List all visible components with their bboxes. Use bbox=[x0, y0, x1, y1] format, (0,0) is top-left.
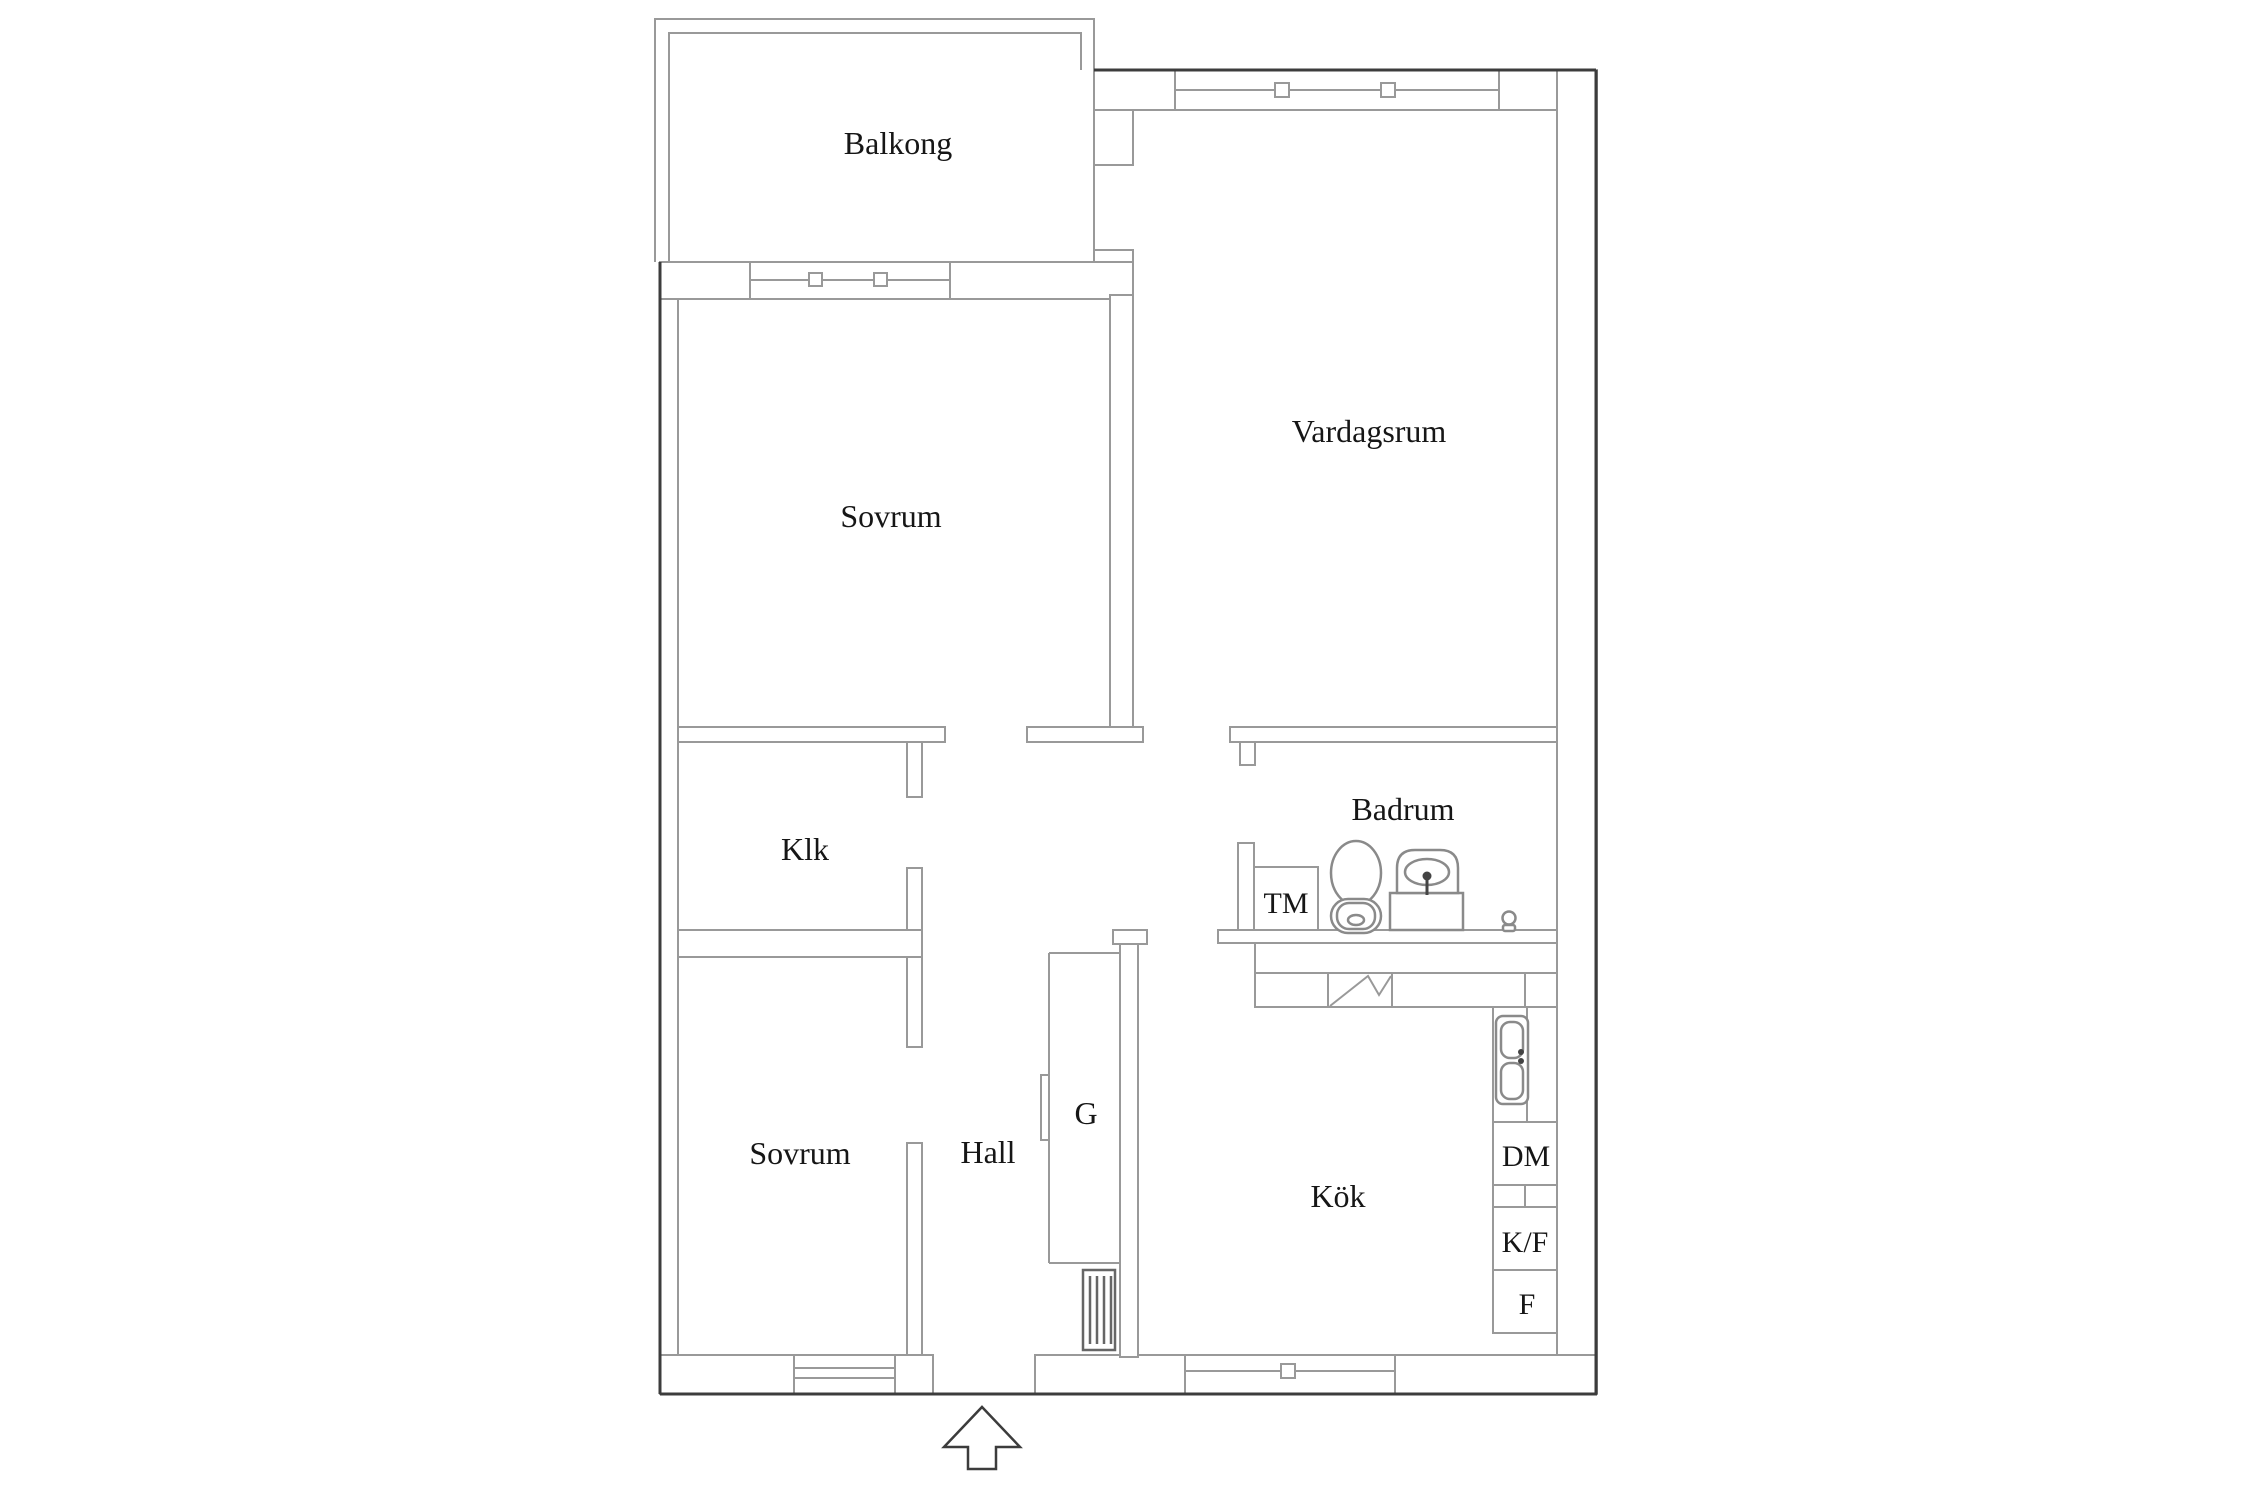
wall bbox=[678, 930, 922, 957]
label-freezer: F bbox=[1519, 1288, 1536, 1321]
wall bbox=[1094, 110, 1133, 165]
label-fridge-freezer: K/F bbox=[1502, 1226, 1549, 1259]
wall bbox=[1230, 727, 1557, 742]
wall bbox=[1027, 727, 1143, 742]
label-dishwasher: DM bbox=[1502, 1140, 1550, 1173]
window-marker bbox=[809, 273, 822, 286]
wardrobe-sliding-door-icon bbox=[1041, 1075, 1049, 1140]
toilet-icon bbox=[1331, 841, 1381, 933]
room-label-bedroom-bottom: Sovrum bbox=[749, 1135, 850, 1171]
floor-plan-drawing: Balkong Vardagsrum Sovrum Klk Badrum TM … bbox=[0, 0, 2250, 1500]
bathroom-sink-icon bbox=[1390, 850, 1463, 930]
entrance-arrow-icon bbox=[944, 1407, 1020, 1469]
radiator-icon bbox=[1083, 1270, 1115, 1350]
wall bbox=[1557, 70, 1597, 1394]
window-marker bbox=[1381, 83, 1395, 97]
wall bbox=[1113, 930, 1147, 944]
floor-plan-canvas: Balkong Vardagsrum Sovrum Klk Badrum TM … bbox=[0, 0, 2250, 1500]
room-label-closet: Klk bbox=[781, 831, 829, 867]
wall bbox=[1238, 843, 1254, 930]
interior-walls bbox=[655, 19, 1597, 1394]
wall bbox=[678, 727, 945, 742]
label-washing-machine: TM bbox=[1264, 887, 1309, 920]
wall bbox=[1120, 944, 1138, 1357]
wall bbox=[907, 1143, 922, 1355]
room-label-wardrobe: G bbox=[1074, 1095, 1097, 1131]
room-label-living-room: Vardagsrum bbox=[1292, 413, 1447, 449]
window-marker bbox=[874, 273, 887, 286]
entrance-doorway bbox=[933, 1351, 1035, 1394]
room-label-bathroom: Badrum bbox=[1351, 791, 1454, 827]
room-label-kitchen: Kök bbox=[1310, 1178, 1365, 1214]
wall bbox=[1240, 742, 1255, 765]
room-label-bedroom-top: Sovrum bbox=[840, 498, 941, 534]
window-marker bbox=[1275, 83, 1289, 97]
room-label-hall: Hall bbox=[960, 1134, 1015, 1170]
room-label-balcony: Balkong bbox=[844, 125, 952, 161]
wall bbox=[1110, 295, 1133, 742]
wall bbox=[1255, 943, 1557, 973]
floor-drain-icon bbox=[1503, 912, 1516, 932]
wall bbox=[660, 1355, 1597, 1394]
window-marker bbox=[1281, 1364, 1295, 1378]
wall bbox=[907, 742, 922, 797]
double-kitchen-sink-icon bbox=[1496, 1016, 1528, 1104]
wall bbox=[660, 262, 678, 1394]
